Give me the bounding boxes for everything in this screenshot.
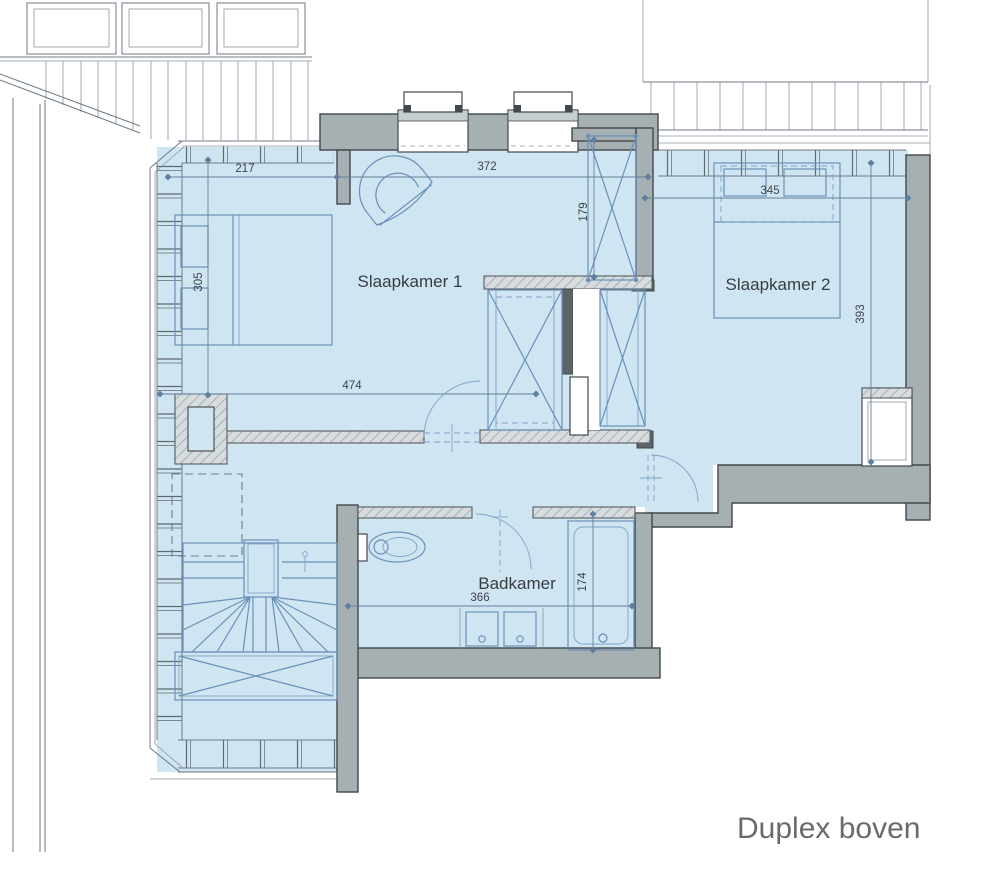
wall-bottom-badkamer: [348, 648, 660, 678]
dim-label-305: 305: [193, 272, 205, 291]
roof-decking-left: [46, 61, 308, 140]
duct-column: [175, 394, 227, 464]
roof-edge-lines: [0, 74, 140, 852]
dim-label-345: 345: [760, 185, 779, 197]
roof-decking-right: [643, 0, 930, 143]
dim-label-174: 174: [577, 572, 589, 592]
room-label-slaapkamer1: Slaapkamer 1: [358, 272, 463, 291]
dim-label-217: 217: [235, 163, 254, 175]
skylight-window-icon: [0, 3, 312, 61]
dresser-icon: [862, 388, 912, 466]
floor-plan-page: 217 372 305 179 345 393 474 366 174 Slaa…: [0, 0, 986, 873]
plan-title: Duplex boven: [737, 812, 920, 845]
dim-label-179: 179: [578, 202, 590, 221]
dim-label-393: 393: [855, 304, 867, 323]
dim-label-372: 372: [477, 161, 496, 173]
dim-label-366: 366: [470, 592, 489, 604]
room-label-slaapkamer2: Slaapkamer 2: [726, 275, 831, 294]
room-label-badkamer: Badkamer: [478, 574, 556, 593]
floor-plan-canvas: 217 372 305 179 345 393 474 366 174 Slaa…: [0, 0, 986, 873]
dim-label-474: 474: [342, 380, 362, 392]
stair-hall-floor: [157, 443, 337, 772]
